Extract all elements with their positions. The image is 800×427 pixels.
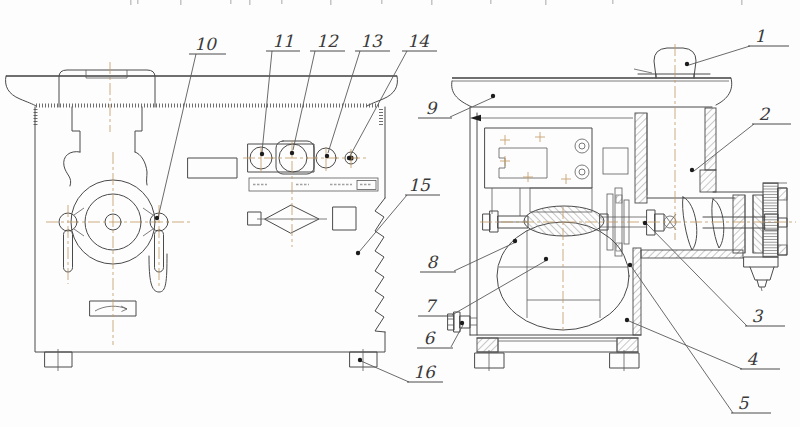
callout-label-1: 1 — [755, 26, 766, 46]
side-pusher — [634, 48, 710, 78]
callout-label-11: 11 — [272, 31, 294, 51]
callout-label-9: 9 — [426, 98, 439, 118]
front-neck — [72, 107, 142, 152]
machine-assembly-drawing: 1 2 3 4 5 6 7 8 9 10 11 12 13 14 15 16 — [0, 0, 800, 427]
callout-label-15: 15 — [408, 175, 431, 195]
front-view — [6, 62, 398, 371]
label-strip — [249, 178, 378, 191]
callout-label-4: 4 — [747, 349, 759, 369]
front-nameplate — [188, 158, 237, 178]
callout-label-2: 2 — [759, 104, 771, 124]
front-logo-badge — [248, 205, 356, 233]
side-base-frame — [475, 338, 639, 371]
side-view — [448, 44, 796, 371]
side-electrical-box — [485, 128, 628, 216]
callout-label-7: 7 — [425, 296, 438, 316]
side-discharge-spout — [744, 257, 778, 291]
drawing-canvas: 1 2 3 4 5 6 7 8 9 10 11 12 13 14 15 16 — [0, 0, 800, 427]
callout-label-16: 16 — [413, 362, 437, 382]
callout-label-10: 10 — [194, 34, 217, 54]
side-feed-tube — [647, 108, 716, 195]
callout-label-6: 6 — [424, 328, 437, 348]
callout-label-8: 8 — [427, 252, 439, 272]
cropped-text-artifact — [130, 0, 743, 5]
callout-label-3: 3 — [752, 306, 764, 326]
front-control-panel — [248, 141, 378, 191]
callout-label-14: 14 — [407, 31, 430, 51]
callout-label-13: 13 — [360, 31, 383, 51]
side-table — [452, 78, 732, 107]
callout-label-5: 5 — [738, 393, 750, 413]
callout-label-12: 12 — [316, 31, 339, 51]
